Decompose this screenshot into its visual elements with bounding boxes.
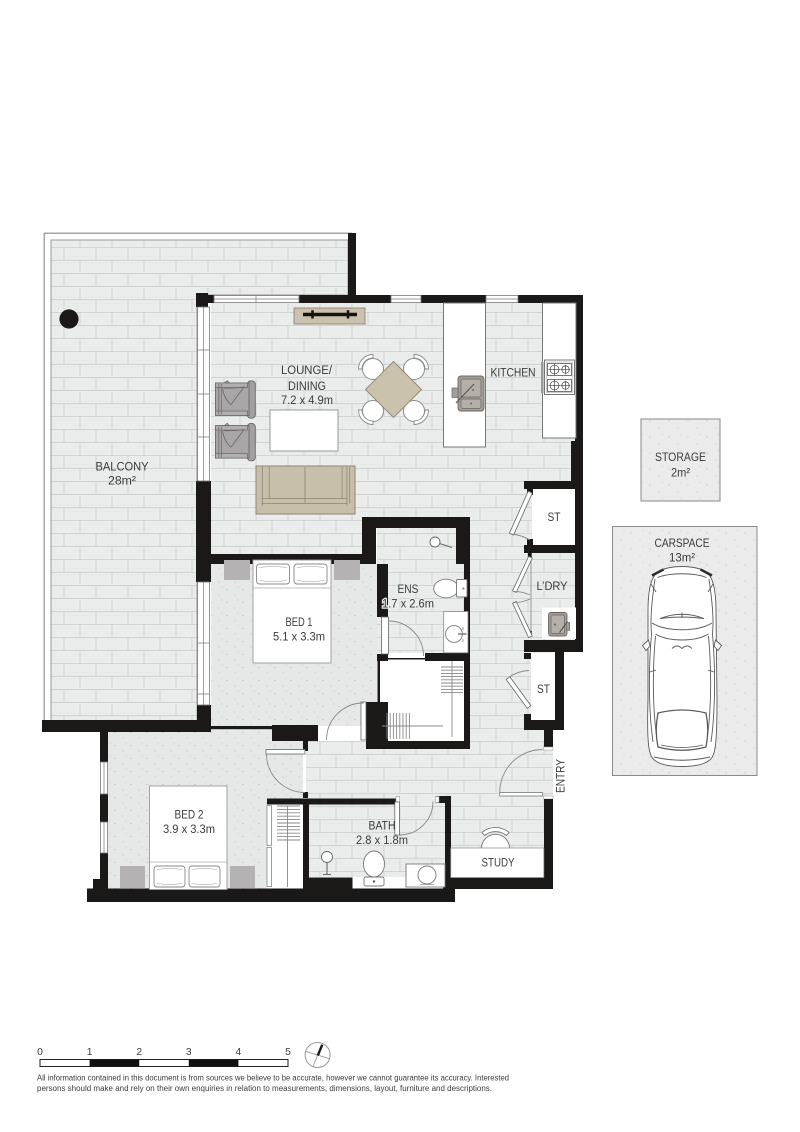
svg-text:BATH: BATH	[369, 819, 396, 833]
svg-text:STORAGE: STORAGE	[655, 450, 706, 464]
svg-text:LOUNGE/: LOUNGE/	[281, 363, 332, 377]
svg-text:5: 5	[285, 1047, 291, 1058]
svg-text:5.1 x 3.3m: 5.1 x 3.3m	[273, 630, 325, 644]
svg-text:STUDY: STUDY	[482, 856, 515, 870]
svg-text:L’DRY: L’DRY	[537, 579, 568, 593]
svg-text:13m²: 13m²	[669, 551, 695, 565]
svg-text:KITCHEN: KITCHEN	[491, 366, 536, 380]
svg-text:2.8 x 1.8m: 2.8 x 1.8m	[356, 833, 408, 847]
svg-text:1.7 x 2.6m: 1.7 x 2.6m	[382, 597, 434, 611]
svg-text:BALCONY: BALCONY	[96, 460, 149, 474]
svg-text:ST: ST	[548, 510, 561, 524]
svg-text:1: 1	[87, 1047, 93, 1058]
svg-text:ENS: ENS	[398, 582, 419, 596]
svg-text:CARSPACE: CARSPACE	[655, 536, 710, 550]
svg-text:7.2 x 4.9m: 7.2 x 4.9m	[281, 393, 333, 407]
svg-text:BED 1: BED 1	[286, 615, 313, 629]
svg-text:persons should make and rely o: persons should make and rely on their ow…	[37, 1084, 492, 1093]
svg-text:4: 4	[236, 1047, 242, 1058]
svg-text:All information contained in t: All information contained in this docume…	[37, 1074, 509, 1083]
svg-text:3.9 x 3.3m: 3.9 x 3.3m	[163, 822, 215, 836]
svg-text:ENTRY: ENTRY	[554, 759, 568, 793]
svg-text:0: 0	[37, 1047, 43, 1058]
svg-text:BED 2: BED 2	[175, 808, 204, 822]
svg-text:3: 3	[186, 1047, 192, 1058]
svg-text:DINING: DINING	[288, 379, 326, 393]
svg-text:2m²: 2m²	[671, 466, 690, 480]
svg-text:ST: ST	[537, 682, 550, 696]
svg-text:28m²: 28m²	[108, 474, 136, 488]
svg-text:2: 2	[136, 1047, 142, 1058]
